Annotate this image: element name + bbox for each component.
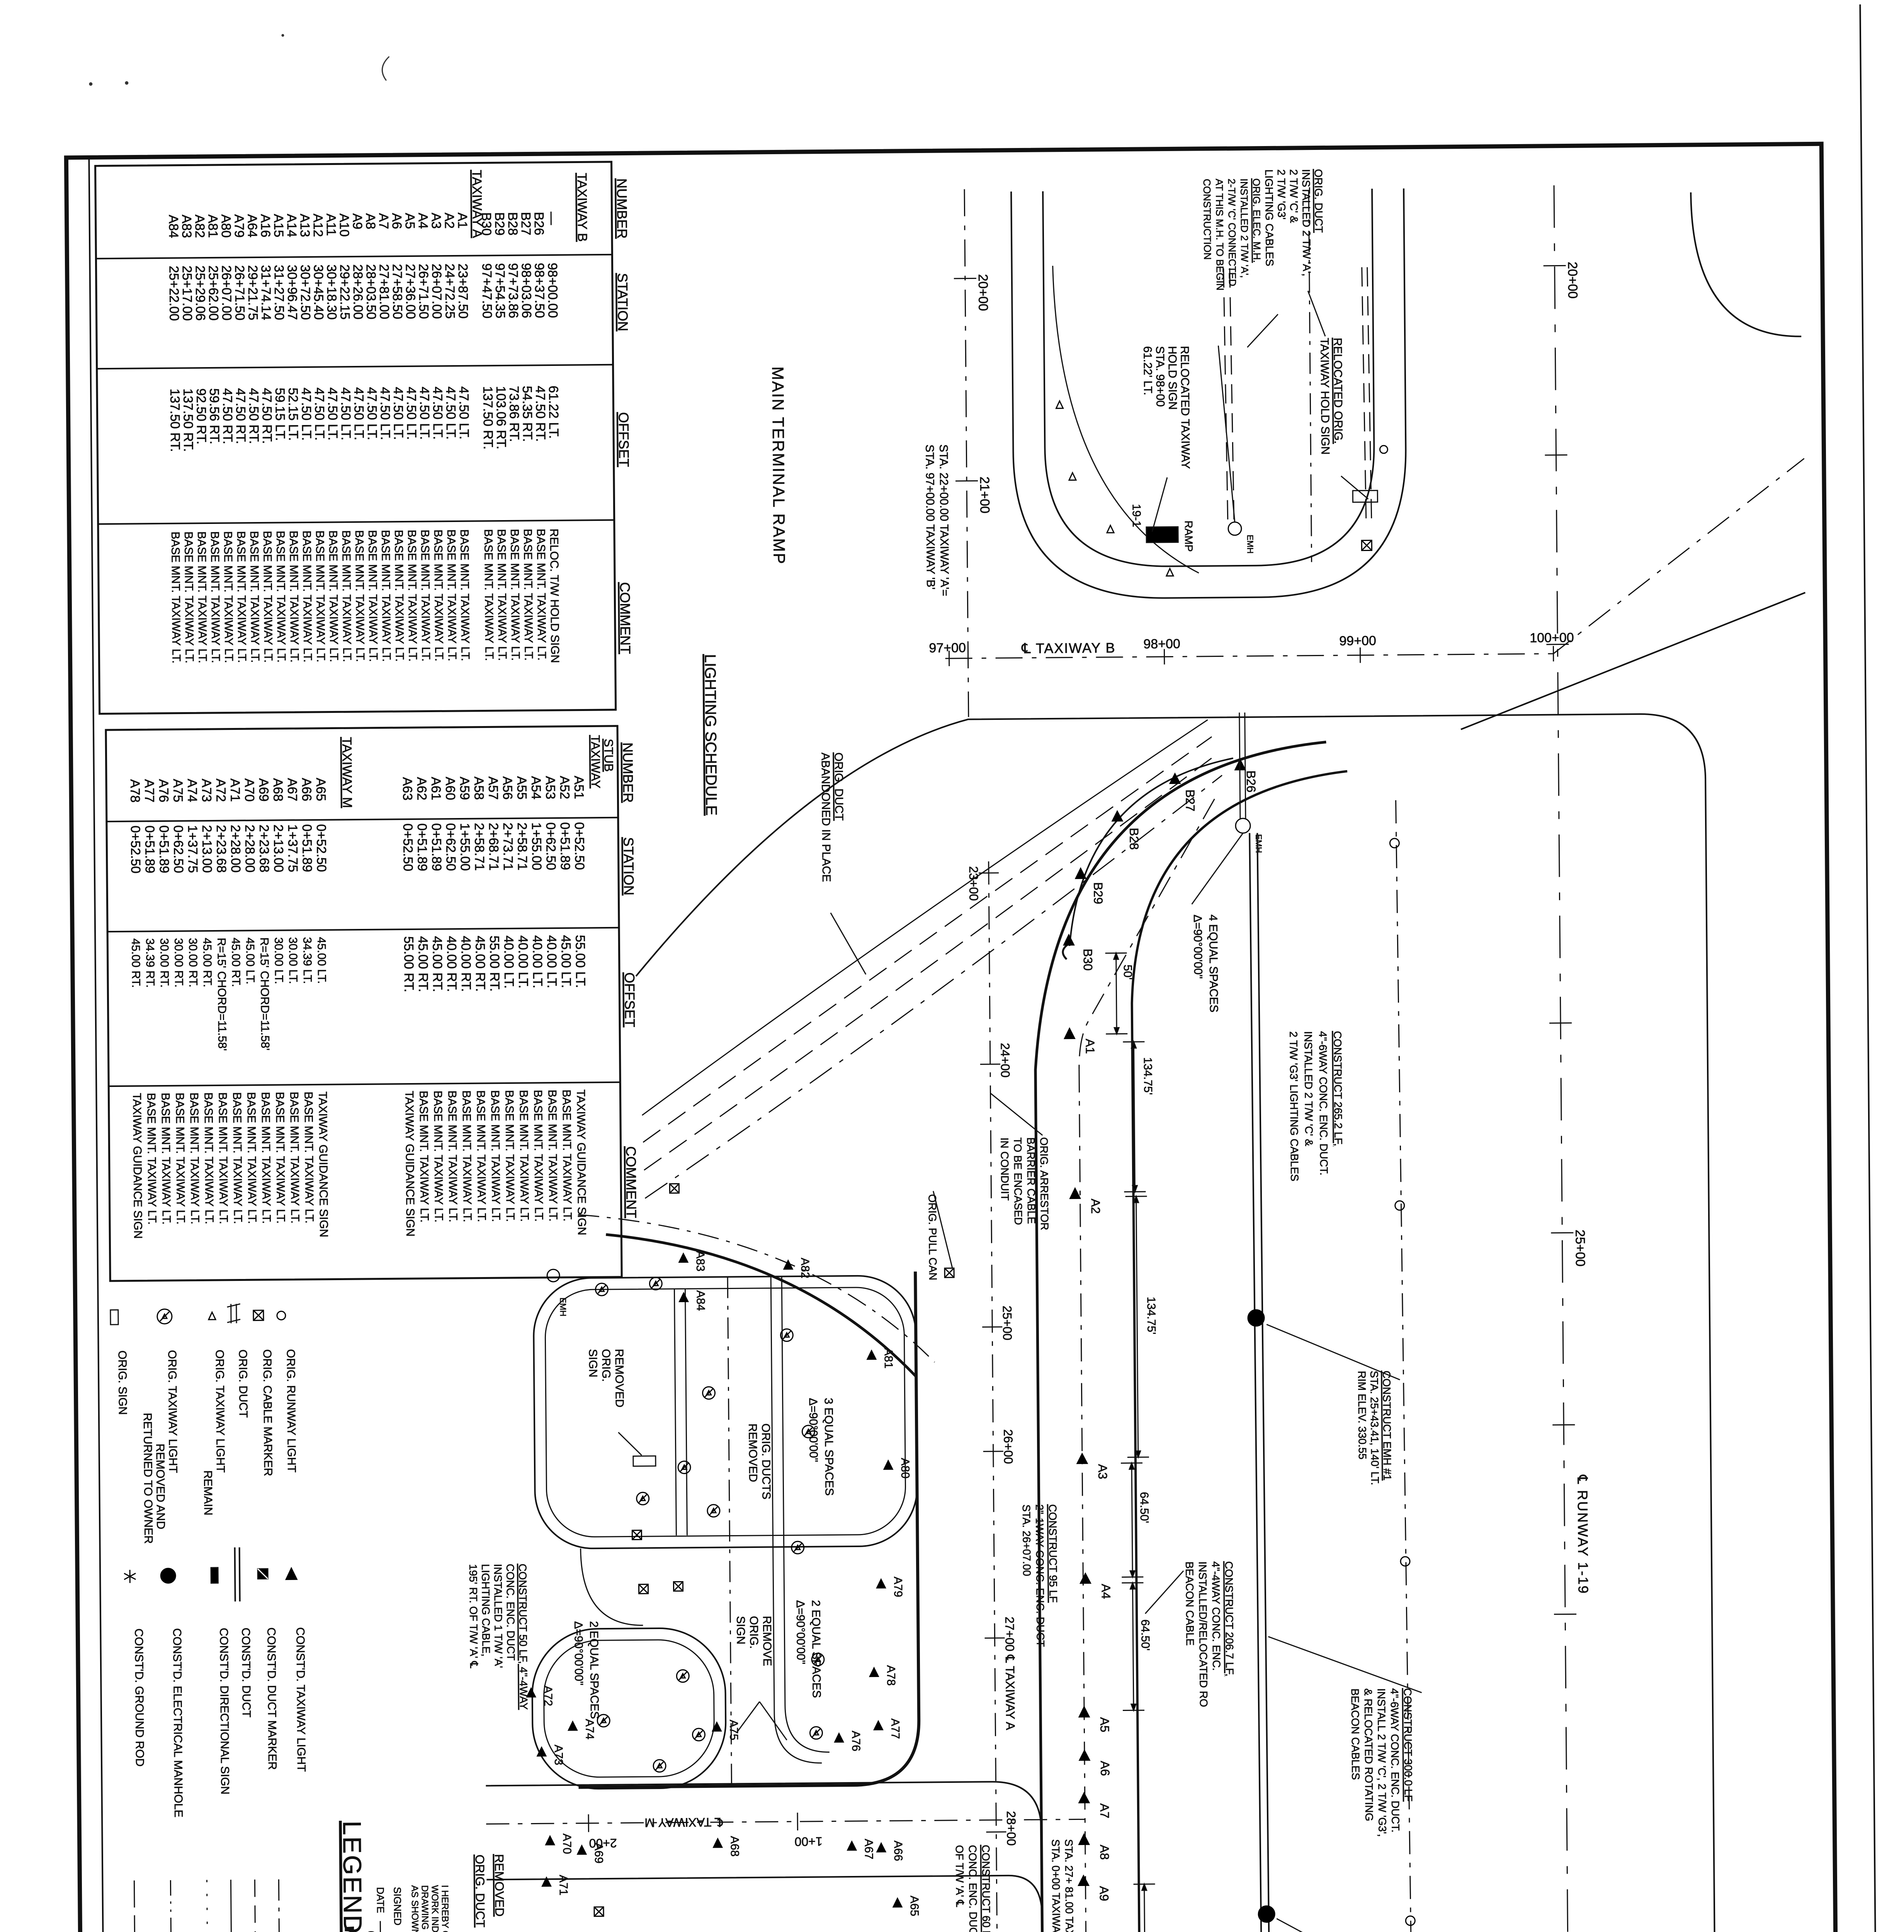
- svg-text:A82: A82: [192, 214, 207, 238]
- svg-text:ORIG. RUNWAY LIGHT: ORIG. RUNWAY LIGHT: [284, 1349, 298, 1473]
- svg-text:CONSTRUCT EMH #1: CONSTRUCT EMH #1: [1380, 1371, 1393, 1480]
- svg-text:TAXIWAY GUIDANCE SIGN: TAXIWAY GUIDANCE SIGN: [403, 1091, 416, 1237]
- svg-text:"AS-BUILT": "AS-BUILT": [321, 1924, 362, 1932]
- svg-text:A75: A75: [727, 1719, 740, 1740]
- svg-text:A14: A14: [284, 214, 299, 237]
- svg-text:TAXIWAY GUIDANCE SIGN: TAXIWAY GUIDANCE SIGN: [130, 1093, 144, 1239]
- svg-text:45.00 RT.: 45.00 RT.: [229, 937, 242, 987]
- svg-text:A70: A70: [560, 1833, 573, 1854]
- svg-text:CONSTRUCT 300.0 LF: CONSTRUCT 300.0 LF: [1402, 1688, 1414, 1802]
- svg-text:Δ=90°00'00": Δ=90°00'00": [1191, 915, 1204, 979]
- svg-text:A79: A79: [891, 1577, 904, 1597]
- svg-text:BASE MNT. TAXIWAY LT.: BASE MNT. TAXIWAY LT.: [531, 1090, 545, 1221]
- svg-text:B29: B29: [1091, 882, 1105, 904]
- svg-text:A71: A71: [557, 1875, 569, 1896]
- svg-text:2 T/W 'G3': 2 T/W 'G3': [1275, 169, 1288, 219]
- svg-text:BASE MNT. TAXIWAY LT.: BASE MNT. TAXIWAY LT.: [474, 1090, 488, 1222]
- svg-text:B28: B28: [505, 212, 520, 236]
- svg-text:B27: B27: [1183, 789, 1197, 811]
- svg-text:A70: A70: [242, 778, 257, 802]
- svg-text:50': 50': [1121, 964, 1134, 980]
- svg-text:BASE MNT. TAXIWAY LT.: BASE MNT. TAXIWAY LT.: [261, 531, 275, 663]
- svg-text:25+00: 25+00: [1000, 1306, 1015, 1340]
- svg-text:B30: B30: [479, 212, 494, 236]
- svg-text:BASE MNT. TAXIWAY LT.: BASE MNT. TAXIWAY LT.: [182, 531, 196, 663]
- svg-text:NUMBER: NUMBER: [620, 742, 636, 803]
- svg-text:30.00 RT.: 30.00 RT.: [172, 938, 185, 988]
- svg-text:0+51.89: 0+51.89: [558, 822, 573, 870]
- svg-text:A59: A59: [457, 777, 472, 800]
- svg-text:STA. 0+00 TAXIWAY 'M': STA. 0+00 TAXIWAY 'M': [1050, 1839, 1062, 1932]
- svg-text:SIGNED: SIGNED: [392, 1887, 404, 1925]
- svg-text:—: —: [545, 212, 559, 225]
- svg-text:A9: A9: [1097, 1886, 1111, 1901]
- svg-text:A73: A73: [552, 1745, 565, 1765]
- svg-text:COMMENT: COMMENT: [617, 582, 633, 654]
- svg-text:0+51.89: 0+51.89: [415, 823, 430, 871]
- svg-text:2"-1WAY CONC. ENC. DUCT: 2"-1WAY CONC. ENC. DUCT: [1034, 1504, 1047, 1647]
- svg-text:BASE MNT. TAXIWAY LT.: BASE MNT. TAXIWAY LT.: [460, 1090, 474, 1222]
- svg-text:BASE MNT. TAXIWAY LT.: BASE MNT. TAXIWAY LT.: [495, 529, 509, 661]
- svg-text:A62: A62: [414, 777, 429, 801]
- svg-text:40.00 LT.: 40.00 LT.: [515, 935, 530, 989]
- svg-text:45.00 RT.: 45.00 RT.: [201, 938, 214, 987]
- svg-text:BASE MNT. TAXIWAY LT.: BASE MNT. TAXIWAY LT.: [273, 1092, 287, 1224]
- svg-text:BEACON CABLES: BEACON CABLES: [1349, 1689, 1362, 1780]
- svg-text:ORIG. ARRESTOR: ORIG. ARRESTOR: [1038, 1137, 1051, 1230]
- svg-text:A57: A57: [486, 776, 500, 800]
- svg-text:2+13.00: 2+13.00: [271, 825, 286, 872]
- svg-text:A63: A63: [400, 777, 415, 801]
- svg-text:A81: A81: [882, 1348, 895, 1369]
- svg-text:2-T/W 'C' CONNECTED: 2-T/W 'C' CONNECTED: [1226, 179, 1238, 286]
- svg-text:BASE MNT. TAXIWAY LT.: BASE MNT. TAXIWAY LT.: [405, 530, 419, 662]
- svg-text:A84: A84: [166, 215, 181, 238]
- svg-text:CONC. ENC. DUCT: CONC. ENC. DUCT: [504, 1564, 517, 1661]
- svg-text:BASE MNT. TAXIWAY LT.: BASE MNT. TAXIWAY LT.: [287, 1092, 301, 1223]
- svg-text:BASE MNT. TAXIWAY LT.: BASE MNT. TAXIWAY LT.: [431, 1090, 445, 1222]
- svg-text:2+68.71: 2+68.71: [486, 823, 501, 871]
- svg-text:BASE MNT. TAXIWAY LT.: BASE MNT. TAXIWAY LT.: [560, 1090, 574, 1221]
- svg-text:0+52.50: 0+52.50: [400, 823, 415, 871]
- svg-text:19-1: 19-1: [1130, 504, 1143, 527]
- svg-text:BASE MNT. TAXIWAY LT.: BASE MNT. TAXIWAY LT.: [508, 529, 522, 661]
- svg-text:2 EQUAL SPACES: 2 EQUAL SPACES: [809, 1600, 823, 1698]
- svg-text:4"-6WAY CONC. ENC. DUCT.: 4"-6WAY CONC. ENC. DUCT.: [1389, 1688, 1402, 1833]
- svg-text:CONSTRUCT 50 LF, 4"-4WAY: CONSTRUCT 50 LF, 4"-4WAY: [517, 1564, 530, 1710]
- svg-text:20+00: 20+00: [1565, 262, 1580, 299]
- svg-text:BEACON CABLE: BEACON CABLE: [1183, 1561, 1196, 1646]
- svg-text:40.00 LT.: 40.00 LT.: [530, 935, 545, 988]
- svg-text:A76: A76: [849, 1731, 862, 1752]
- svg-text:ORIG. SIGN: ORIG. SIGN: [116, 1350, 129, 1415]
- svg-text:ORIG. ELEC. M.H.: ORIG. ELEC. M.H.: [1251, 179, 1263, 263]
- svg-text:TAXIWAY GUIDANCE SIGN: TAXIWAY GUIDANCE SIGN: [574, 1089, 588, 1235]
- svg-text:2 T/W 'C' &: 2 T/W 'C' &: [1288, 169, 1300, 223]
- svg-text:RELOCATED TAXIWAY: RELOCATED TAXIWAY: [1178, 346, 1192, 469]
- svg-text:A65: A65: [908, 1896, 921, 1917]
- svg-text:0+51.89: 0+51.89: [429, 823, 444, 871]
- svg-text:R=15' CHORD=11.58': R=15' CHORD=11.58': [215, 938, 228, 1051]
- svg-text:BASE MNT. TAXIWAY LT.: BASE MNT. TAXIWAY LT.: [482, 529, 496, 661]
- svg-text:Δ=90°00'00": Δ=90°00'00": [794, 1600, 807, 1664]
- svg-text:A69: A69: [592, 1843, 605, 1864]
- svg-text:A76: A76: [156, 779, 171, 803]
- svg-text:A67: A67: [285, 778, 299, 801]
- svg-text:ORIG. CABLE MARKER: ORIG. CABLE MARKER: [261, 1349, 275, 1476]
- svg-text:45.00 LT.: 45.00 LT.: [315, 937, 328, 984]
- svg-text:A3: A3: [1096, 1464, 1110, 1479]
- svg-text:RAMP: RAMP: [1183, 520, 1195, 552]
- svg-text:A64: A64: [245, 214, 260, 238]
- svg-text:BASE MNT. TAXIWAY LT.: BASE MNT. TAXIWAY LT.: [274, 531, 288, 662]
- svg-text:DRAWING HAS BEEN COMPLETED: DRAWING HAS BEEN COMPLETED: [420, 1885, 431, 1932]
- svg-text:STATION: STATION: [615, 273, 631, 331]
- svg-text:A8: A8: [1098, 1845, 1112, 1860]
- svg-text:REMOVED: REMOVED: [746, 1423, 759, 1482]
- svg-text:A13: A13: [297, 214, 312, 237]
- svg-text:A12: A12: [311, 214, 325, 237]
- svg-text:61.22' LT.: 61.22' LT.: [1141, 346, 1154, 395]
- svg-text:BASE MNT. TAXIWAY LT.: BASE MNT. TAXIWAY LT.: [230, 1092, 244, 1224]
- svg-text:2+13.00: 2+13.00: [199, 825, 214, 873]
- svg-text:ORIG. DUCT: ORIG. DUCT: [832, 752, 845, 821]
- svg-text:BASE MNT. TAXIWAY LT.: BASE MNT. TAXIWAY LT.: [488, 1090, 502, 1222]
- svg-text:R=15' CHORD=11.58': R=15' CHORD=11.58': [258, 937, 271, 1051]
- svg-text:3 EQUAL SPACES: 3 EQUAL SPACES: [822, 1398, 836, 1496]
- svg-text:A66: A66: [299, 778, 314, 801]
- svg-text:1+37.75: 1+37.75: [285, 824, 300, 872]
- svg-text:WORK INDICATED ON THIS: WORK INDICATED ON THIS: [430, 1885, 441, 1932]
- svg-text:BASE MNT. TAXIWAY LT.: BASE MNT. TAXIWAY LT.: [302, 1092, 316, 1223]
- svg-text:BASE MNT. TAXIWAY LT.: BASE MNT. TAXIWAY LT.: [245, 1092, 258, 1224]
- svg-text:CONST'D. TAXIWAY LIGHT: CONST'D. TAXIWAY LIGHT: [294, 1627, 308, 1772]
- svg-text:ORIG. TAXIWAY LIGHT: ORIG. TAXIWAY LIGHT: [166, 1350, 179, 1473]
- svg-text:BASE MNT. TAXIWAY LT.: BASE MNT. TAXIWAY LT.: [159, 1093, 173, 1225]
- svg-text:ORIG.: ORIG.: [747, 1616, 760, 1649]
- svg-text:CONSTRUCT 60 LF., 4"-4WAY: CONSTRUCT 60 LF., 4"-4WAY: [980, 1845, 993, 1932]
- svg-text:26+00: 26+00: [1001, 1429, 1015, 1464]
- svg-text:2+23.68: 2+23.68: [257, 825, 272, 872]
- svg-text:55.00 RT.: 55.00 RT.: [401, 936, 416, 992]
- svg-text:2+58.71: 2+58.71: [472, 823, 487, 871]
- svg-text:INSTALLED 2 T/W 'C' &: INSTALLED 2 T/W 'C' &: [1302, 1031, 1315, 1146]
- svg-text:A60: A60: [443, 777, 457, 800]
- svg-text:25+00: 25+00: [1572, 1230, 1588, 1267]
- svg-text:CONST'D. DUCT MARKER: CONST'D. DUCT MARKER: [265, 1628, 279, 1770]
- svg-text:A5: A5: [1098, 1717, 1112, 1732]
- svg-text:INSTALL 2 T/W 'C', 2 T/W 'G3',: INSTALL 2 T/W 'C', 2 T/W 'G3',: [1375, 1688, 1389, 1837]
- svg-text:30.00 LT.: 30.00 LT.: [286, 937, 299, 984]
- svg-text:30.00 LT.: 30.00 LT.: [272, 937, 285, 984]
- svg-text:EMH: EMH: [1245, 535, 1255, 554]
- svg-text:A1: A1: [1083, 1039, 1097, 1054]
- svg-text:I HEREBY CERTIFY THAT ALL: I HEREBY CERTIFY THAT ALL: [440, 1885, 451, 1932]
- svg-text:OFFSET: OFFSET: [622, 972, 638, 1027]
- svg-text:1+37.75: 1+37.75: [185, 825, 200, 873]
- svg-text:TAXIWAY: TAXIWAY: [588, 735, 603, 788]
- svg-text:2+28.00: 2+28.00: [242, 825, 257, 872]
- svg-text:A4: A4: [416, 213, 430, 229]
- svg-text:TO BE ENCASED: TO BE ENCASED: [1011, 1138, 1024, 1225]
- svg-text:ORIG. TAXIWAY LIGHT: ORIG. TAXIWAY LIGHT: [213, 1350, 227, 1473]
- svg-text:A72: A72: [541, 1685, 554, 1706]
- svg-text:BASE MNT. TAXIWAY LT.: BASE MNT. TAXIWAY LT.: [418, 530, 432, 662]
- svg-text:B26: B26: [532, 212, 546, 235]
- svg-text:CONST'D. GROUND ROD: CONST'D. GROUND ROD: [132, 1628, 146, 1767]
- svg-text:A74: A74: [185, 779, 199, 802]
- svg-text:A66: A66: [892, 1840, 904, 1861]
- svg-text:A75: A75: [170, 779, 185, 803]
- svg-text:A53: A53: [543, 776, 558, 799]
- svg-text:40.00 RT.: 40.00 RT.: [444, 936, 459, 992]
- svg-text:BASE MNT. TAXIWAY LT.: BASE MNT. TAXIWAY LT.: [392, 530, 406, 662]
- svg-text:20+00: 20+00: [976, 274, 991, 311]
- svg-text:A65: A65: [313, 778, 328, 801]
- svg-text:A2: A2: [442, 213, 457, 229]
- svg-text:21+00: 21+00: [977, 476, 992, 514]
- svg-text:A58: A58: [471, 776, 486, 800]
- svg-text:1+55.00: 1+55.00: [457, 823, 473, 871]
- svg-text:A51: A51: [571, 776, 586, 799]
- svg-text:A56: A56: [500, 776, 515, 800]
- svg-text:STATION: STATION: [620, 837, 637, 895]
- svg-text:BASE MNT. TAXIWAY LT.: BASE MNT. TAXIWAY LT.: [353, 530, 367, 662]
- svg-text:BASE MNT. TAXIWAY LT.: BASE MNT. TAXIWAY LT.: [187, 1092, 201, 1224]
- svg-text:BASE MNT. TAXIWAY LT.: BASE MNT. TAXIWAY LT.: [521, 529, 535, 660]
- svg-text:4"-4WAY CONC. ENC.: 4"-4WAY CONC. ENC.: [1210, 1561, 1222, 1671]
- svg-text:BASE MNT. TAXIWAY LT.: BASE MNT. TAXIWAY LT.: [445, 1090, 459, 1222]
- svg-text:0+52.50: 0+52.50: [128, 825, 143, 873]
- svg-text:40.00 LT.: 40.00 LT.: [501, 935, 516, 989]
- svg-text:BASE MNT. TAXIWAY LT.: BASE MNT. TAXIWAY LT.: [517, 1090, 531, 1222]
- svg-text:CONST'D. DIRECTIONAL SIGN: CONST'D. DIRECTIONAL SIGN: [217, 1628, 231, 1795]
- svg-text:REMAIN: REMAIN: [201, 1470, 214, 1515]
- svg-text:45.00 RT.: 45.00 RT.: [415, 936, 430, 992]
- svg-text:45.00 LT.: 45.00 LT.: [558, 935, 573, 988]
- svg-text:A9: A9: [350, 213, 365, 230]
- svg-text:CONSTRUCT 265.2 LF,: CONSTRUCT 265.2 LF,: [1331, 1031, 1344, 1146]
- svg-text:30.00 RT.: 30.00 RT.: [158, 938, 171, 988]
- svg-text:A5: A5: [403, 213, 417, 229]
- svg-text:BASE MNT. TAXIWAY LT.: BASE MNT. TAXIWAY LT.: [216, 1092, 230, 1224]
- svg-text:A68: A68: [728, 1836, 741, 1857]
- svg-text:CONSTRUCT 95 LF: CONSTRUCT 95 LF: [1047, 1504, 1059, 1603]
- svg-text:STA. 98+00: STA. 98+00: [1153, 346, 1166, 407]
- svg-text:A74: A74: [583, 1719, 596, 1740]
- svg-text:BASE MNT. TAXIWAY LT.: BASE MNT. TAXIWAY LT.: [208, 531, 222, 663]
- svg-text:0+51.89: 0+51.89: [299, 824, 314, 872]
- svg-text:A3: A3: [429, 213, 444, 229]
- svg-text:BASE MNT. TAXIWAY LT.: BASE MNT. TAXIWAY LT.: [366, 530, 380, 662]
- svg-text:A69: A69: [256, 778, 271, 802]
- svg-text:4"-6WAY CONC. ENC. DUCT.: 4"-6WAY CONC. ENC. DUCT.: [1317, 1031, 1330, 1175]
- svg-text:TAXIWAY M: TAXIWAY M: [339, 737, 354, 808]
- svg-text:OF T/W 'A' ℄: OF T/W 'A' ℄: [954, 1845, 966, 1907]
- svg-text:EMH: EMH: [1254, 834, 1263, 853]
- svg-text:0+51.89: 0+51.89: [156, 825, 172, 873]
- svg-text:STA. 22+00.00 TAXIWAY 'A'=: STA. 22+00.00 TAXIWAY 'A'=: [937, 444, 951, 596]
- svg-text:BARRIER CABLE: BARRIER CABLE: [1025, 1137, 1037, 1224]
- svg-text:INSTALLED 2 T/W 'A',: INSTALLED 2 T/W 'A',: [1300, 169, 1313, 277]
- svg-text:A80: A80: [219, 214, 233, 238]
- svg-text:2 EQUAL SPACES: 2 EQUAL SPACES: [587, 1621, 601, 1719]
- svg-text:A68: A68: [270, 778, 285, 802]
- svg-text:NUMBER: NUMBER: [614, 178, 630, 238]
- svg-text:℄ TAXIWAY M: ℄ TAXIWAY M: [644, 1815, 723, 1830]
- svg-text:2+58.71: 2+58.71: [515, 823, 530, 871]
- svg-text:27+00 ℄ TAXIWAY A: 27+00 ℄ TAXIWAY A: [1003, 1617, 1017, 1731]
- svg-text:2 T/W 'G3' LIGHTING CABLES: 2 T/W 'G3' LIGHTING CABLES: [1287, 1031, 1300, 1182]
- svg-text:REMOVED: REMOVED: [492, 1854, 507, 1917]
- svg-text:BASE MNT. TAXIWAY LT.: BASE MNT. TAXIWAY LT.: [432, 529, 445, 661]
- svg-text:ORIG.: ORIG.: [600, 1349, 613, 1382]
- svg-text:A6: A6: [389, 213, 404, 229]
- svg-text:A71: A71: [228, 778, 242, 802]
- svg-text:100+00: 100+00: [1530, 630, 1574, 645]
- svg-text:A2: A2: [1089, 1199, 1103, 1214]
- svg-text:30.00 RT.: 30.00 RT.: [186, 938, 199, 987]
- svg-text:CONST'D. ELECTRICAL MANHOLE: CONST'D. ELECTRICAL MANHOLE: [170, 1628, 185, 1818]
- svg-text:98+00: 98+00: [1143, 636, 1180, 651]
- svg-text:STUB: STUB: [602, 739, 616, 772]
- svg-text:BASE MNT. TAXIWAY LT.: BASE MNT. TAXIWAY LT.: [534, 529, 548, 660]
- svg-text:97+47.50: 97+47.50: [479, 263, 495, 318]
- svg-text:MAIN TERMINAL RAMP: MAIN TERMINAL RAMP: [769, 366, 789, 565]
- svg-text:TAXIWAY B: TAXIWAY B: [575, 173, 590, 242]
- svg-text:55.00 RT.: 55.00 RT.: [487, 935, 502, 992]
- svg-text:SIGN: SIGN: [586, 1349, 600, 1378]
- svg-text:1+55.00: 1+55.00: [529, 822, 544, 870]
- svg-text:CONST'D. DUCT: CONST'D. DUCT: [239, 1628, 253, 1718]
- svg-text:IN CONDUIT: IN CONDUIT: [998, 1138, 1011, 1201]
- svg-text:45.00 LT.: 45.00 LT.: [243, 937, 257, 984]
- svg-text:A1: A1: [455, 213, 470, 229]
- svg-text:A7: A7: [1098, 1803, 1112, 1818]
- svg-text:ORIG. DUCT: ORIG. DUCT: [1312, 169, 1325, 233]
- svg-text:A54: A54: [529, 776, 543, 799]
- svg-text:BASE MNT. TAXIWAY LT.: BASE MNT. TAXIWAY LT.: [300, 531, 314, 662]
- svg-text:A84: A84: [694, 1290, 707, 1311]
- svg-text:25+22.00: 25+22.00: [167, 266, 182, 321]
- svg-text:STA. 25+43.41, 140' LT.: STA. 25+43.41, 140' LT.: [1368, 1371, 1381, 1485]
- svg-text:45.00 RT.: 45.00 RT.: [430, 936, 445, 992]
- svg-text:0+62.50: 0+62.50: [443, 823, 458, 871]
- svg-text:99+00: 99+00: [1339, 633, 1376, 648]
- svg-text:AS SHOWN.: AS SHOWN.: [410, 1885, 420, 1932]
- svg-text:BASE MNT. TAXIWAY LT.: BASE MNT. TAXIWAY LT.: [379, 530, 393, 662]
- svg-text:& RELOCATED ROTATING: & RELOCATED ROTATING: [1362, 1688, 1375, 1821]
- svg-text:STA. 97+00.00 TAXIWAY 'B': STA. 97+00.00 TAXIWAY 'B': [923, 444, 937, 589]
- svg-text:OFFSET: OFFSET: [616, 412, 632, 467]
- svg-text:HOLD SIGN: HOLD SIGN: [1166, 346, 1179, 410]
- svg-text:BASE MNT. TAXIWAY LT.: BASE MNT. TAXIWAY LT.: [287, 531, 301, 662]
- svg-text:STA. 26+07.00: STA. 26+07.00: [1020, 1504, 1033, 1576]
- svg-text:A78: A78: [127, 779, 142, 803]
- svg-text:BASE MNT. TAXIWAY LT.: BASE MNT. TAXIWAY LT.: [326, 530, 340, 662]
- svg-text:A11: A11: [324, 213, 338, 236]
- svg-text:BASE MNT. TAXIWAY LT.: BASE MNT. TAXIWAY LT.: [458, 529, 472, 661]
- svg-text:55.00 LT.: 55.00 LT.: [573, 935, 588, 988]
- svg-text:STA. 27+ 81.00 TAXIWAY 'A'=: STA. 27+ 81.00 TAXIWAY 'A'=: [1063, 1839, 1076, 1932]
- svg-text:REMOVED: REMOVED: [613, 1349, 626, 1408]
- svg-text:BASE MNT. TAXIWAY LT.: BASE MNT. TAXIWAY LT.: [221, 531, 235, 663]
- svg-text:28+00: 28+00: [1004, 1811, 1018, 1846]
- svg-text:CONSTRUCT 206.7 LF,: CONSTRUCT 206.7 LF,: [1223, 1561, 1236, 1676]
- svg-text:23+00: 23+00: [967, 866, 981, 901]
- svg-text:64.50': 64.50': [1139, 1619, 1152, 1651]
- svg-text:137.50 RT.: 137.50 RT.: [167, 389, 182, 452]
- svg-text:B27: B27: [518, 212, 533, 235]
- svg-text:INSTALLED 2 T/W 'A',: INSTALLED 2 T/W 'A',: [1238, 179, 1251, 278]
- svg-text:LIGHTING CABLE,: LIGHTING CABLE,: [479, 1564, 492, 1656]
- svg-text:0+52.50: 0+52.50: [314, 824, 329, 872]
- svg-text:RETURNED TO OWNER: RETURNED TO OWNER: [141, 1413, 155, 1544]
- svg-text:A52: A52: [557, 776, 572, 799]
- svg-text:2+28.00: 2+28.00: [228, 825, 243, 872]
- svg-text:BASE MNT. TAXIWAY LT.: BASE MNT. TAXIWAY LT.: [195, 531, 209, 663]
- svg-text:45.00 RT.: 45.00 RT.: [473, 935, 488, 992]
- svg-text:B26: B26: [1244, 770, 1258, 793]
- svg-text:2+23.68: 2+23.68: [214, 825, 229, 873]
- svg-text:A79: A79: [232, 214, 246, 238]
- svg-text:REMOVED AND: REMOVED AND: [154, 1444, 167, 1529]
- svg-text:LIGHTING CABLES: LIGHTING CABLES: [1263, 169, 1276, 266]
- svg-text:BASE MNT. TAXIWAY LT.: BASE MNT. TAXIWAY LT.: [340, 530, 354, 662]
- svg-text:AT THIS M.H. TO BEGIN: AT THIS M.H. TO BEGIN: [1214, 179, 1226, 291]
- svg-text:DATE: DATE: [375, 1887, 387, 1913]
- svg-text:BASE MNT. TAXIWAY LT.: BASE MNT. TAXIWAY LT.: [259, 1092, 273, 1224]
- svg-text:CONC. ENC. DUCT, 47.50' RT.: CONC. ENC. DUCT, 47.50' RT.: [967, 1845, 980, 1932]
- svg-text:REMOVE: REMOVE: [760, 1616, 773, 1666]
- svg-text:0+51.89: 0+51.89: [142, 825, 157, 873]
- svg-text:ORIG. DUCT: ORIG. DUCT: [236, 1349, 250, 1418]
- svg-text:2+73.71: 2+73.71: [500, 823, 515, 871]
- svg-text:A15: A15: [271, 214, 286, 237]
- svg-text:A8: A8: [363, 213, 378, 230]
- svg-text:BASE MNT. TAXIWAY LT.: BASE MNT. TAXIWAY LT.: [173, 1093, 187, 1225]
- svg-text:BASE MNT. TAXIWAY LT.: BASE MNT. TAXIWAY LT.: [313, 531, 327, 662]
- svg-text:0+62.50: 0+62.50: [543, 822, 558, 870]
- svg-text:134.75': 134.75': [1141, 1057, 1154, 1095]
- svg-text:97+00: 97+00: [929, 641, 966, 656]
- svg-text:BASE MNT. TAXIWAY LT.: BASE MNT. TAXIWAY LT.: [169, 532, 183, 663]
- svg-text:1+00: 1+00: [794, 1835, 822, 1849]
- svg-text:ORIG. DUCTS: ORIG. DUCTS: [759, 1423, 773, 1500]
- svg-text:A83: A83: [694, 1251, 707, 1272]
- svg-text:B29: B29: [492, 212, 507, 236]
- svg-text:INSTALLED 1 T/W 'A': INSTALLED 1 T/W 'A': [492, 1564, 505, 1668]
- svg-text:34.39 RT.: 34.39 RT.: [143, 938, 156, 988]
- svg-text:A72: A72: [213, 779, 228, 802]
- svg-text:ORIG. DUCT: ORIG. DUCT: [473, 1854, 487, 1927]
- svg-text:RELOC. T/W HOLD SIGN: RELOC. T/W HOLD SIGN: [547, 529, 561, 663]
- svg-text:64.50': 64.50': [1138, 1492, 1151, 1523]
- svg-text:A82: A82: [799, 1258, 811, 1279]
- svg-text:A81: A81: [206, 214, 220, 238]
- svg-text:137.50 RT.: 137.50 RT.: [480, 386, 495, 449]
- svg-text:B28: B28: [1127, 828, 1141, 850]
- svg-text:A4: A4: [1099, 1584, 1113, 1599]
- svg-text:A77: A77: [889, 1718, 901, 1739]
- svg-text:RIM ELEV. 330.55: RIM ELEV. 330.55: [1356, 1371, 1368, 1460]
- svg-text:40.00 RT.: 40.00 RT.: [458, 936, 473, 992]
- svg-text:SIGN: SIGN: [734, 1616, 747, 1645]
- svg-text:BASE MNT. TAXIWAY LT.: BASE MNT. TAXIWAY LT.: [503, 1090, 517, 1222]
- svg-text:BASE MNT. TAXIWAY LT.: BASE MNT. TAXIWAY LT.: [235, 531, 248, 663]
- svg-text:BASE MNT. TAXIWAY LT.: BASE MNT. TAXIWAY LT.: [445, 529, 459, 661]
- svg-text:TAXIWAY HOLD SIGN: TAXIWAY HOLD SIGN: [1318, 338, 1331, 455]
